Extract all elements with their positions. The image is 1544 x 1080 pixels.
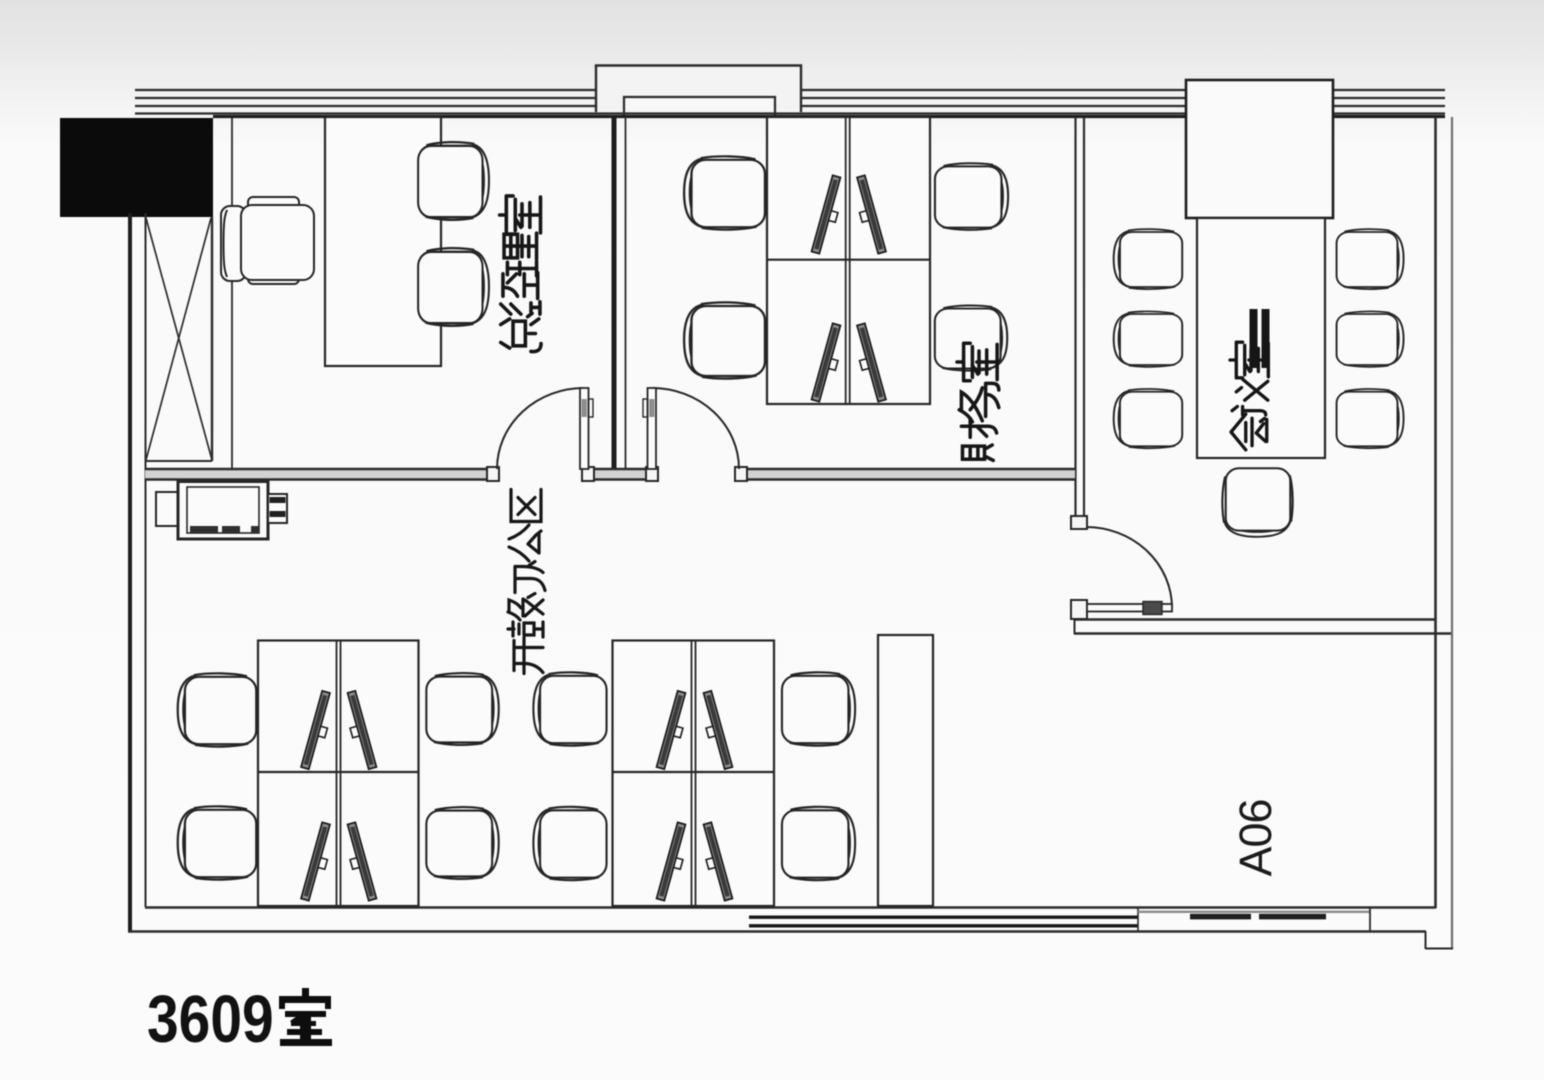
svg-text:3609: 3609 [147, 983, 274, 1057]
svg-text:A06: A06 [1230, 799, 1281, 876]
